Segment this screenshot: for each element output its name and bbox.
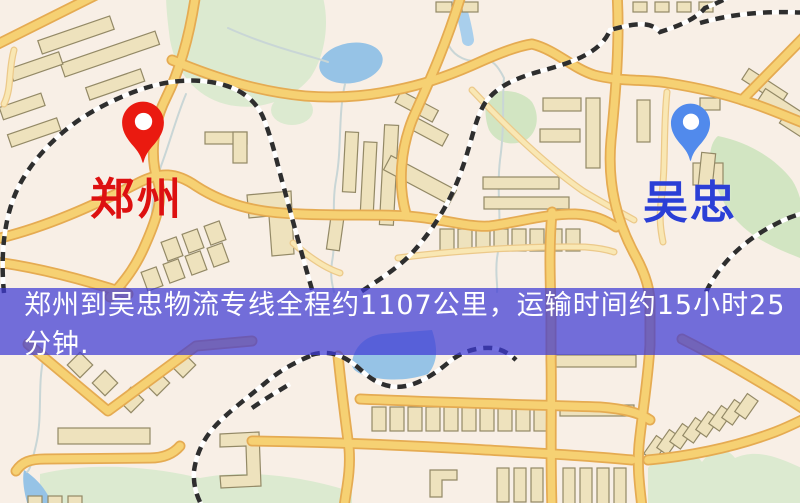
origin-marker-pin[interactable]	[120, 96, 166, 170]
pin-body[interactable]	[671, 104, 710, 161]
pin-hole	[135, 113, 152, 130]
buildings	[0, 2, 800, 503]
pin-body[interactable]	[122, 102, 164, 163]
route-info-banner: 郑州到吴忠物流专线全程约1107公里，运输时间约15小时25分钟.	[0, 288, 800, 355]
route-info-text: 郑州到吴忠物流专线全程约1107公里，运输时间约15小时25分钟.	[0, 283, 800, 361]
map-viewport: 郑州 吴忠 郑州到吴忠物流专线全程约1107公里，运输时间约15小时25分钟.	[0, 0, 800, 503]
origin-city-label: 郑州	[90, 178, 184, 222]
pin-hole	[683, 114, 699, 130]
destination-marker-pin[interactable]	[669, 99, 712, 167]
destination-city-label: 吴忠	[643, 180, 737, 225]
map-background	[0, 0, 800, 503]
